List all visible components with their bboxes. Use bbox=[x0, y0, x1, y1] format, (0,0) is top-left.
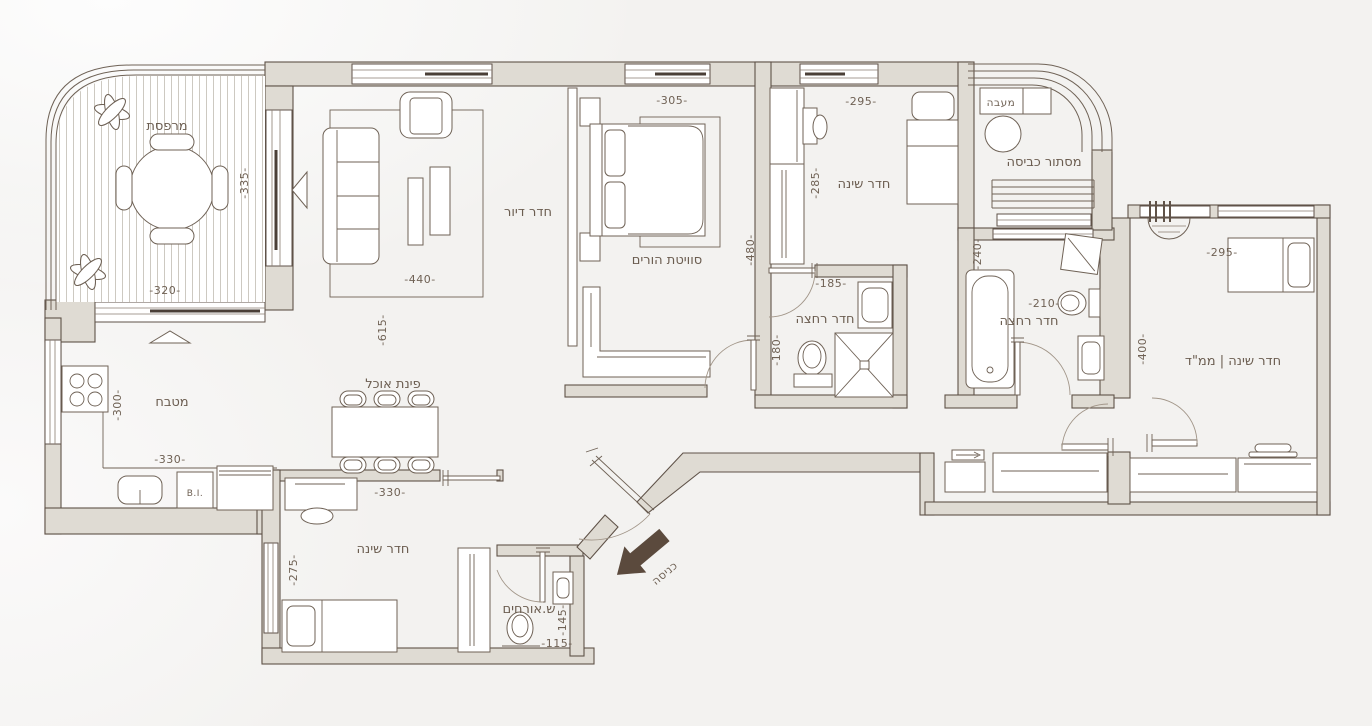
bath-mid-dim-v: -180- bbox=[770, 334, 783, 365]
slider-direction-triangle bbox=[150, 331, 190, 343]
door-master bbox=[705, 336, 760, 390]
boiler bbox=[985, 116, 1021, 152]
armchair bbox=[400, 92, 452, 138]
room-bedroom-bottom: -330- חדר שינה -275- bbox=[282, 478, 490, 652]
sink-icon bbox=[1078, 336, 1104, 380]
toilet-icon bbox=[1058, 289, 1100, 317]
bedroom-top-dim-h: -295- bbox=[845, 95, 876, 108]
guest-wc-label: ש.אורחים bbox=[503, 602, 556, 617]
window-master-top bbox=[625, 64, 710, 84]
room-living: חדר דיור -440- -615- bbox=[323, 92, 552, 346]
terrace-label: מרפסת bbox=[146, 119, 187, 134]
sofa bbox=[323, 128, 379, 264]
nightstand bbox=[580, 233, 600, 261]
pillow bbox=[287, 606, 315, 646]
shower-icon bbox=[835, 333, 893, 397]
sink-icon bbox=[553, 572, 573, 604]
sink-icon bbox=[858, 282, 892, 328]
double-bed bbox=[590, 124, 705, 236]
closet bbox=[770, 88, 804, 164]
closet bbox=[458, 548, 490, 652]
room-bedroom-top: חדר שינה -295- -285- bbox=[770, 88, 958, 264]
condenser-label: מעבה bbox=[987, 97, 1016, 109]
laundry-label: מסתור כביסה bbox=[1006, 155, 1081, 170]
terrace-dim-h: -320- bbox=[149, 284, 180, 297]
built-in-label: B.I. bbox=[187, 489, 204, 499]
bath-mid-label: חדר רחצה bbox=[795, 312, 854, 327]
cabinet bbox=[1130, 458, 1236, 492]
louver-slats bbox=[992, 180, 1094, 226]
kitchen-dim-v: -300- bbox=[111, 389, 124, 420]
single-bed bbox=[907, 92, 958, 204]
room-bath-mid: -185- חדר רחצה -180- bbox=[770, 277, 893, 397]
window-bedroom-top bbox=[800, 64, 878, 84]
entrance-label: כניסה bbox=[649, 559, 680, 588]
mamad-dim-v: -400- bbox=[1136, 333, 1149, 364]
room-kitchen: מטבח -300- -330- B.I. bbox=[62, 366, 277, 510]
nightstand bbox=[580, 98, 600, 126]
dining-table bbox=[332, 407, 438, 457]
cabinet-tilted bbox=[1061, 234, 1103, 275]
pillow bbox=[605, 130, 625, 176]
toilet-icon bbox=[794, 341, 832, 387]
chair bbox=[212, 166, 228, 210]
bathtub-icon bbox=[966, 270, 1014, 388]
room-laundry: מעבה מסתור כביסה bbox=[980, 88, 1094, 226]
window-living-top bbox=[352, 64, 492, 84]
bath-right-dim-h: -210- bbox=[1028, 297, 1059, 310]
terrace-dim-v: -335- bbox=[238, 167, 251, 198]
cabinet bbox=[1023, 88, 1051, 114]
corridor bbox=[945, 450, 1107, 492]
single-bed bbox=[282, 600, 397, 652]
room-mamad: חדר שינה | ממ"ד -295- -400- bbox=[1130, 238, 1317, 492]
chair bbox=[116, 166, 132, 210]
round-table bbox=[130, 146, 214, 230]
partition-living-master bbox=[568, 88, 577, 346]
stove-icon bbox=[62, 366, 108, 412]
mamad-dim-h: -295- bbox=[1206, 246, 1237, 259]
pillow bbox=[605, 182, 625, 228]
window-kitchen-left bbox=[45, 340, 61, 444]
pillow bbox=[912, 92, 954, 120]
bedroom-top-label: חדר שינה bbox=[838, 177, 891, 192]
bedroom-bottom-label: חדר שינה bbox=[357, 542, 410, 557]
bath-right-label: חדר רחצה bbox=[999, 314, 1058, 329]
chair bbox=[1255, 444, 1291, 452]
living-dim-v: -615- bbox=[376, 314, 389, 345]
bedroom-bottom-dim-h: -330- bbox=[374, 486, 405, 499]
chair bbox=[150, 228, 194, 244]
mamad-label: חדר שינה | ממ"ד bbox=[1185, 354, 1281, 369]
entrance-marker: כניסה bbox=[606, 522, 680, 588]
room-dining: פינת אוכל bbox=[332, 377, 438, 473]
closet bbox=[770, 164, 804, 264]
bath-mid-dim-h: -185- bbox=[815, 277, 846, 290]
master-dim-v: -480- bbox=[744, 234, 757, 265]
room-bath-right: -240- -210- חדר רחצה bbox=[966, 234, 1104, 388]
stool bbox=[813, 115, 827, 139]
window-terrace-kitchen bbox=[95, 302, 265, 322]
dining-label: פינת אוכל bbox=[365, 377, 420, 392]
counter-edge bbox=[103, 412, 277, 468]
single-bed bbox=[1228, 238, 1314, 292]
window-terrace-living bbox=[266, 110, 292, 266]
bedroom-bottom-dim-v: -275- bbox=[287, 554, 300, 585]
arrow-marker bbox=[952, 450, 984, 460]
kitchen-dim-h: -330- bbox=[154, 453, 185, 466]
master-label: סוויטת הורים bbox=[632, 253, 702, 268]
living-dim-h: -440- bbox=[404, 273, 435, 286]
room-master-suite: סוויטת הורים -305- -480- bbox=[580, 94, 757, 377]
door-bath-mid bbox=[769, 263, 817, 317]
floor-plan-canvas: מרפסת -335- -320- חדר דיור -440- -615- bbox=[0, 0, 1372, 726]
desk bbox=[285, 478, 357, 524]
l-shaped-closet bbox=[583, 287, 710, 377]
living-label: חדר דיור bbox=[504, 205, 552, 220]
door-bath-right bbox=[1011, 338, 1070, 395]
window-bedroom-bottom-left bbox=[264, 543, 278, 633]
kitchen-label: מטבח bbox=[155, 395, 188, 410]
room-guest-wc: ש.אורחים -145- -115- bbox=[502, 572, 573, 650]
bedroom-top-dim-v: -285- bbox=[809, 167, 822, 198]
desk bbox=[1238, 444, 1317, 492]
guest-wc-dim-v: -145- bbox=[556, 604, 569, 635]
coffee-table bbox=[430, 167, 450, 235]
sideboard bbox=[993, 453, 1107, 492]
pillow bbox=[1288, 243, 1310, 287]
blast-window-mamad bbox=[1140, 201, 1210, 239]
chair bbox=[150, 134, 194, 150]
kitchen-sink-icon bbox=[118, 476, 162, 504]
guest-wc-dim-h: -115- bbox=[541, 637, 572, 650]
shoe-cabinet bbox=[945, 462, 985, 492]
dishwasher bbox=[217, 466, 273, 510]
door-bedroom-bottom-sliding bbox=[443, 470, 500, 486]
toilet-icon bbox=[502, 612, 540, 646]
window-mamad-top bbox=[1218, 206, 1314, 217]
coffee-table bbox=[408, 178, 423, 245]
slider-direction-triangle bbox=[292, 172, 307, 208]
chair bbox=[301, 508, 333, 524]
bath-right-dim-v: -240- bbox=[971, 238, 984, 269]
master-dim-h: -305- bbox=[656, 94, 687, 107]
